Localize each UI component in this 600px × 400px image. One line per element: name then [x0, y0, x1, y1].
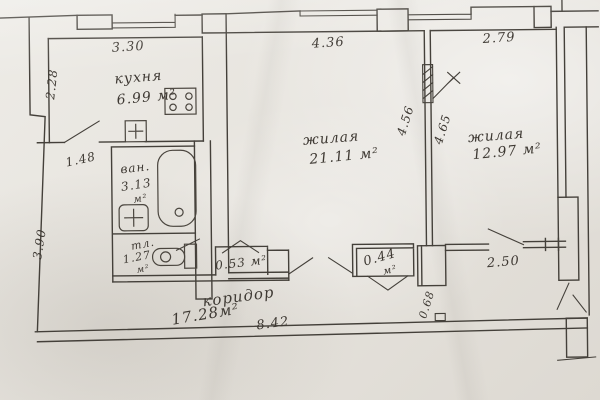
washbasin-cross-icon — [119, 205, 148, 231]
window-kitchen — [112, 14, 175, 28]
living1-area: 21.11 м² — [308, 145, 380, 168]
bath-label: ван. — [120, 159, 151, 176]
dim-corridor-bottom: 8.42 — [256, 314, 291, 333]
facade-pier — [77, 15, 112, 29]
wc-unit: м² — [136, 264, 151, 276]
door-swing — [557, 283, 586, 312]
kitchen-right-wall — [202, 37, 203, 141]
room-partition — [424, 31, 432, 246]
floor-plan: 3.30 4.36 2.79 2.28 1.48 3.90 кухня 6.99… — [0, 0, 600, 400]
left-outer-wall — [29, 18, 47, 332]
bottom-wall — [35, 318, 587, 342]
facade-pier — [202, 14, 226, 33]
right-outer-wall — [556, 27, 589, 315]
dim-kitchen-top: 3.30 — [111, 39, 145, 56]
dim-living1-top: 4.36 — [310, 35, 345, 52]
kitchen-area: 6.99 м² — [116, 87, 177, 109]
living1-left-wall — [226, 33, 229, 273]
dim-left-lower: 3.90 — [30, 228, 49, 261]
dim-duct: 0.68 — [416, 289, 437, 320]
living1-label: жилая — [302, 128, 360, 148]
bath-area: 3.13 — [120, 176, 152, 194]
door-swing — [368, 276, 408, 290]
right-pier — [558, 197, 579, 280]
facade-pier — [534, 6, 551, 27]
bottom-right-column — [566, 318, 587, 357]
dim-hall-door: 1.48 — [64, 149, 97, 169]
facade-pier — [377, 9, 408, 31]
dim-right-passage: 2.50 — [485, 254, 520, 272]
duct-shaft — [417, 245, 445, 285]
bathtub-icon — [157, 150, 196, 226]
kitchen-label: кухня — [114, 68, 163, 88]
labels: 3.30 4.36 2.79 2.28 1.48 3.90 кухня 6.99… — [28, 30, 545, 336]
dim-kitchen-left: 2.28 — [43, 68, 60, 101]
window-living1 — [300, 10, 377, 16]
dim-living2-top: 2.79 — [481, 30, 516, 47]
door-swing — [488, 229, 523, 245]
closet-small-area: 0.53 м² — [214, 253, 268, 273]
wall-tick — [435, 313, 445, 320]
scanned-floor-plan-page: 3.30 4.36 2.79 2.28 1.48 3.90 кухня 6.99… — [0, 0, 600, 400]
door-swing — [64, 121, 99, 142]
sink-cross-icon — [125, 121, 146, 142]
outer-walls — [0, 0, 600, 366]
dim-living2-side: 4.65 — [431, 113, 454, 147]
door-swing — [289, 257, 353, 274]
window-living2 — [408, 14, 471, 20]
toilet-icon — [152, 244, 196, 268]
bath-unit: м² — [133, 193, 149, 206]
vent-shaft-arrow-icon — [433, 72, 460, 98]
dim-living1-side: 4.56 — [394, 104, 417, 138]
